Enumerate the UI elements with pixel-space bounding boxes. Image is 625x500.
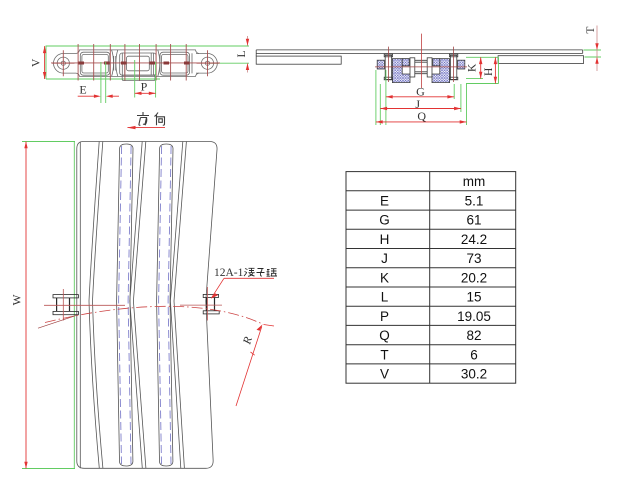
svg-text:V: V — [380, 367, 389, 382]
svg-text:82: 82 — [466, 328, 481, 343]
svg-text:H: H — [380, 232, 390, 247]
svg-text:W: W — [12, 294, 24, 305]
svg-text:J: J — [381, 251, 388, 266]
svg-text:Q: Q — [417, 109, 426, 123]
svg-text:T: T — [380, 347, 388, 362]
svg-text:15: 15 — [466, 290, 481, 305]
svg-text:61: 61 — [466, 213, 481, 228]
svg-text:30.2: 30.2 — [461, 367, 487, 382]
svg-text:T: T — [585, 27, 597, 34]
svg-text:L: L — [381, 290, 389, 305]
svg-text:P: P — [380, 309, 389, 324]
svg-text:G: G — [379, 213, 390, 228]
svg-text:Q: Q — [379, 328, 390, 343]
svg-text:mm: mm — [463, 174, 486, 189]
svg-text:E: E — [380, 194, 389, 209]
svg-text:73: 73 — [466, 251, 481, 266]
svg-text:20.2: 20.2 — [461, 270, 487, 285]
svg-text:P: P — [141, 79, 148, 93]
svg-text:24.2: 24.2 — [461, 232, 487, 247]
svg-text:K: K — [467, 63, 479, 72]
svg-text:L: L — [236, 50, 248, 57]
svg-text:H: H — [483, 68, 495, 76]
svg-text:5.1: 5.1 — [465, 194, 484, 209]
svg-text:E: E — [79, 83, 86, 97]
svg-text:12A-1: 12A-1 — [214, 267, 244, 279]
svg-text:V: V — [31, 58, 43, 67]
svg-text:K: K — [380, 270, 389, 285]
svg-text:6: 6 — [470, 347, 478, 362]
svg-text:19.05: 19.05 — [457, 309, 491, 324]
